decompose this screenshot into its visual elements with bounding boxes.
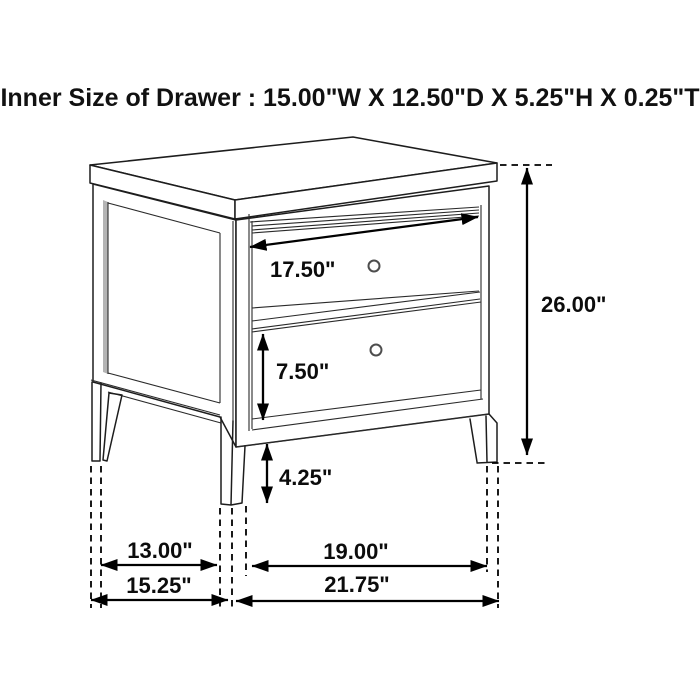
dim-label-drawer-face-height: 7.50" xyxy=(276,359,329,384)
extension-line-back-left-leg xyxy=(91,466,101,608)
front-right-leg xyxy=(470,414,497,463)
top-drawer-knob xyxy=(369,261,380,272)
dim-label-overall-height: 26.00" xyxy=(541,292,606,317)
back-left-leg xyxy=(92,382,122,461)
bottom-drawer-knob xyxy=(371,345,382,356)
dim-label-leg-height: 4.25" xyxy=(279,465,332,490)
side-panel-shadow-strip xyxy=(103,200,108,374)
dim-label-drawer-width: 17.50" xyxy=(270,257,335,282)
extension-line-front-right-leg xyxy=(487,466,498,608)
side-panel xyxy=(91,183,236,447)
dim-label-overall-depth: 15.25" xyxy=(126,573,191,598)
dim-label-front-leg-span: 19.00" xyxy=(323,539,388,564)
extension-line-front-left-leg xyxy=(220,506,246,608)
nightstand-line-drawing: 17.50" 26.00" 7.50" 4.25" 13.00" 15.25" … xyxy=(0,0,700,700)
front-face xyxy=(236,186,489,447)
dim-label-side-leg-span: 13.00" xyxy=(127,538,192,563)
dim-label-overall-width: 21.75" xyxy=(324,572,389,597)
dimension-diagram: Inner Size of Drawer : 15.00"W X 12.50"D… xyxy=(0,0,700,700)
nightstand xyxy=(90,137,497,505)
